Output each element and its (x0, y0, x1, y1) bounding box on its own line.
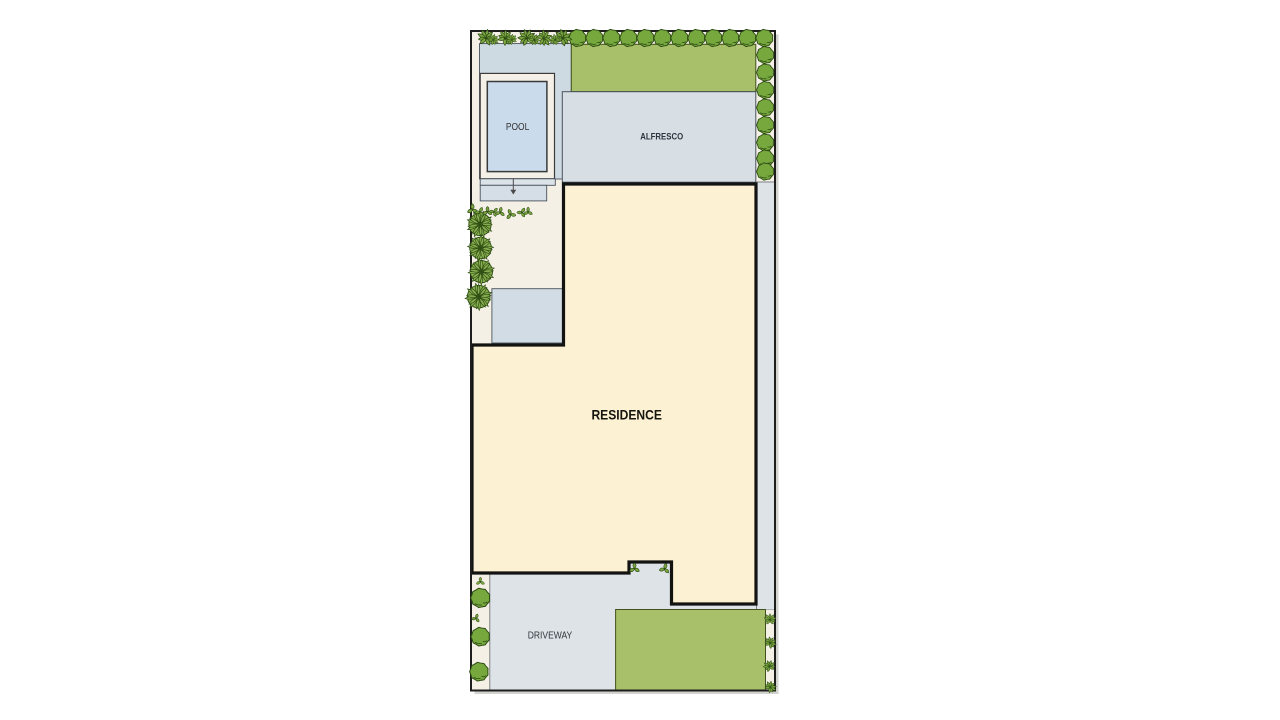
svg-text:RESIDENCE: RESIDENCE (591, 407, 662, 423)
svg-text:ALFRESCO: ALFRESCO (640, 132, 683, 143)
svg-text:DRIVEWAY: DRIVEWAY (528, 631, 573, 642)
svg-text:POOL: POOL (506, 122, 530, 133)
